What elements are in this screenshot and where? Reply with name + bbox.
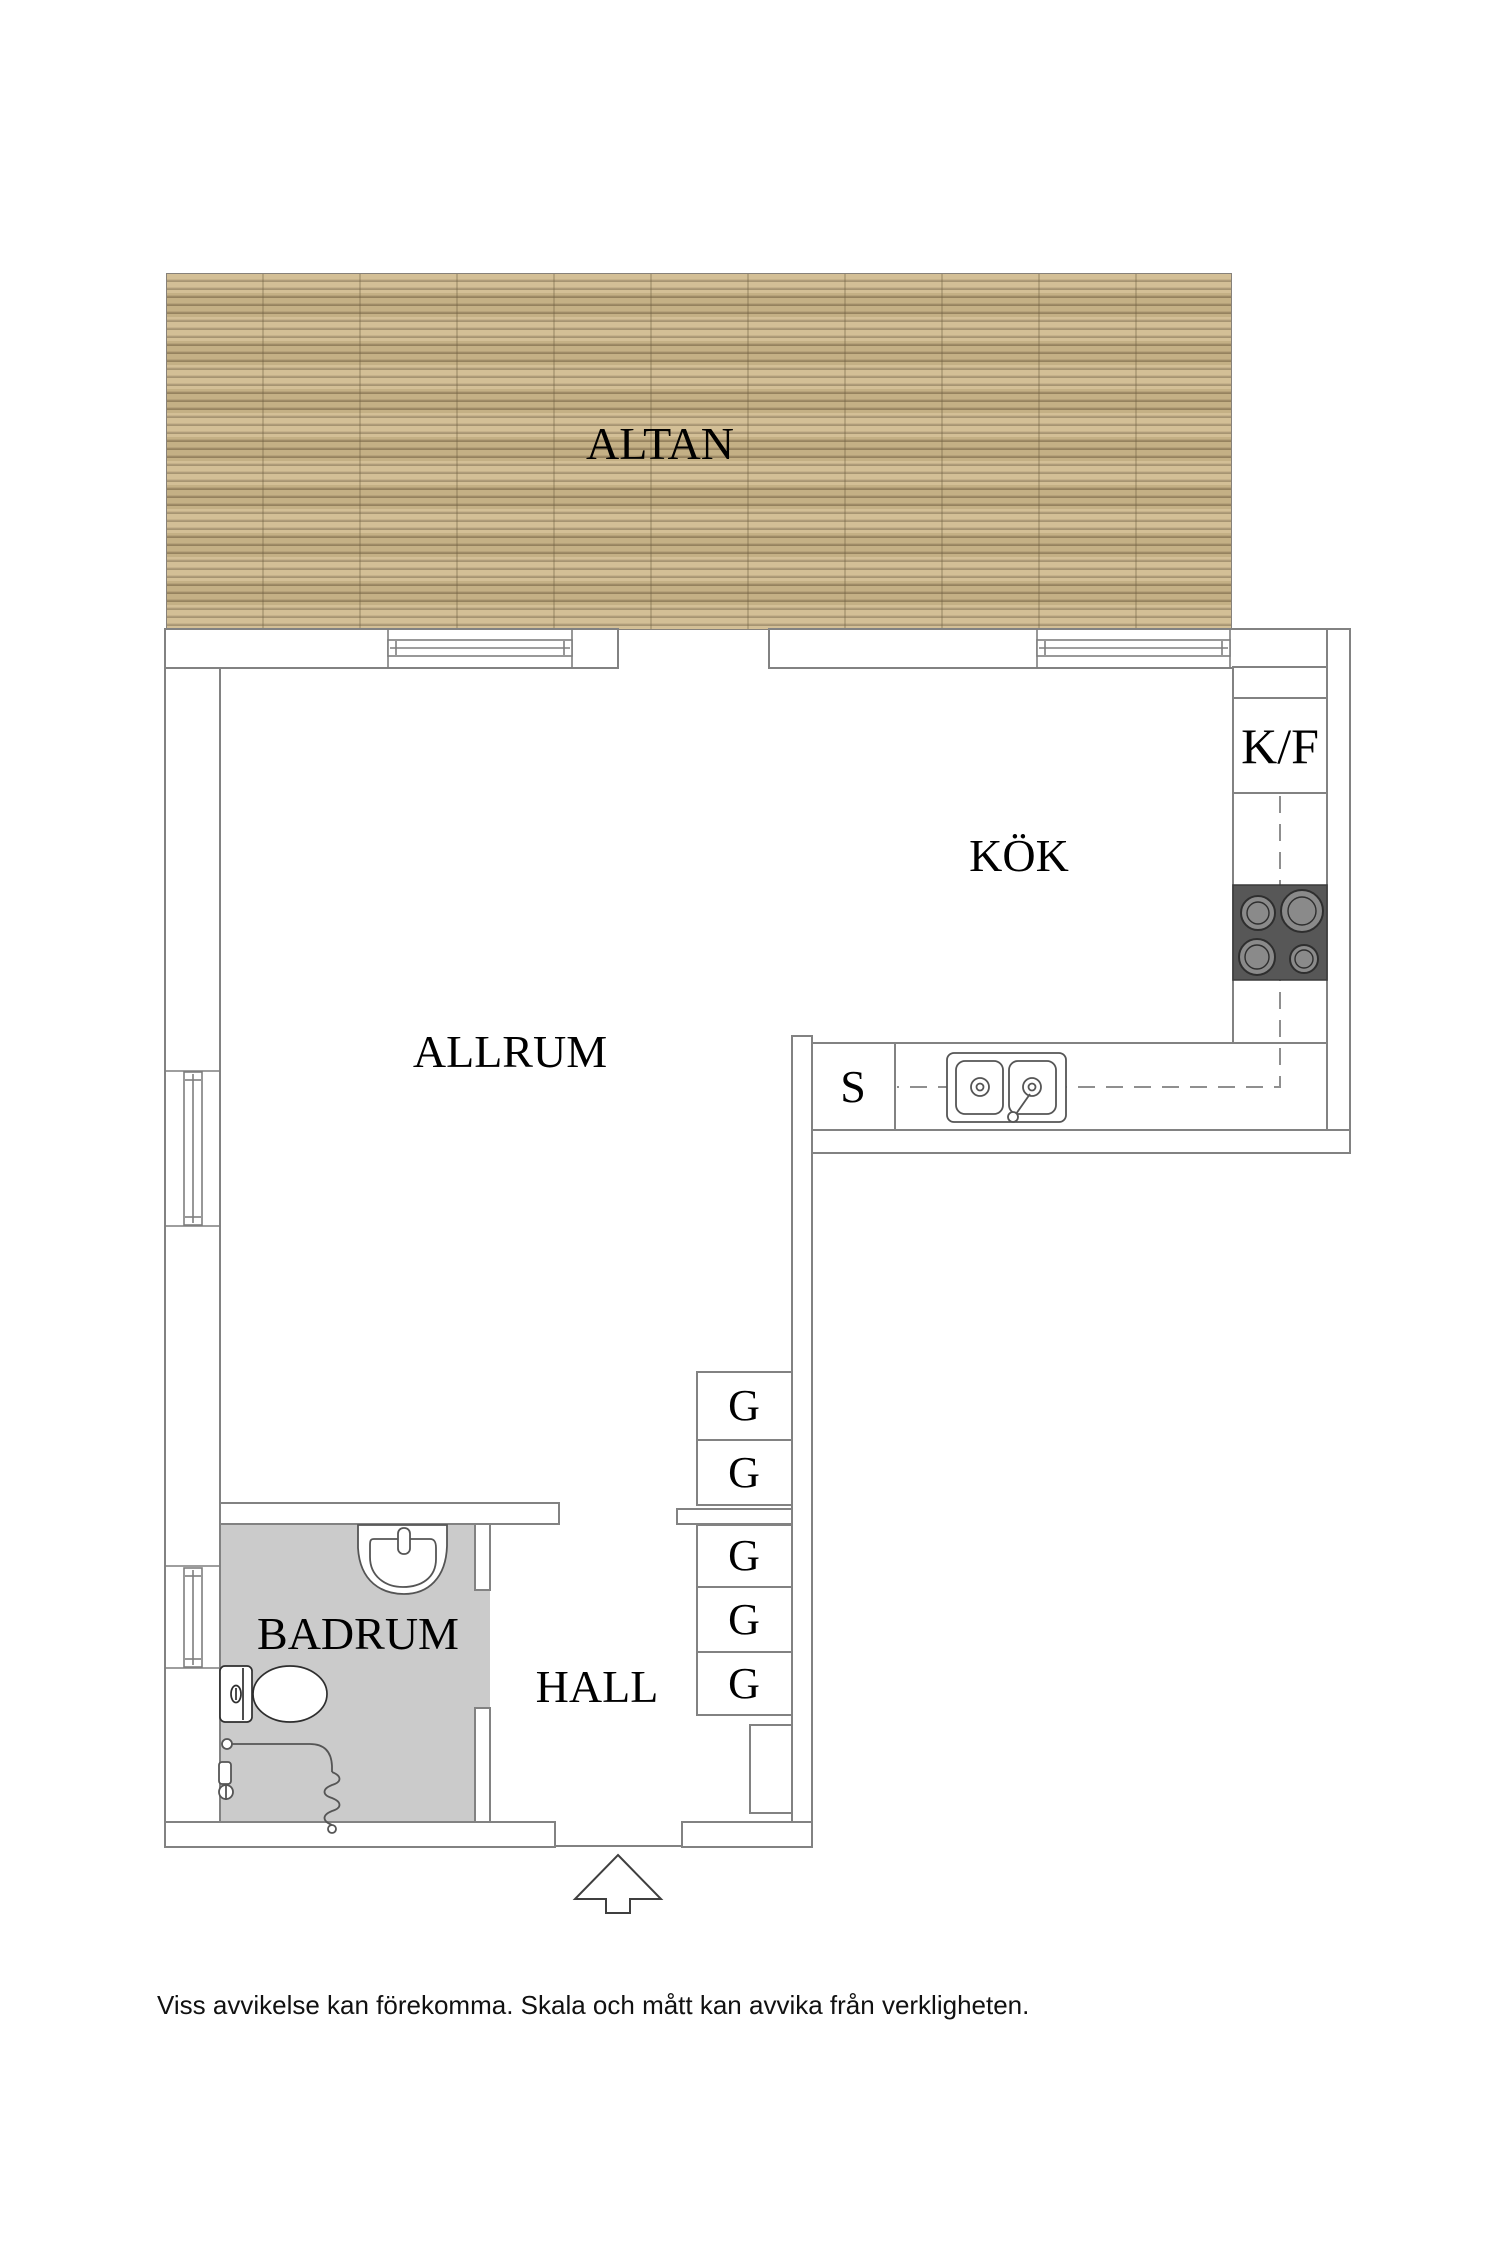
kitchen-south-wall [812, 1130, 1350, 1153]
room-label-allrum: ALLRUM [413, 1029, 607, 1075]
wardrobe-label: G [728, 1534, 760, 1578]
wardrobes [697, 1372, 792, 1813]
double-bowl-kitchen-sink-icon [947, 1053, 1066, 1122]
entrance-arrow-icon [575, 1855, 661, 1913]
bathroom-floor [220, 1524, 490, 1822]
floorplan-page: ALTAN KÖK ALLRUM BADRUM HALL K/F S G G G… [0, 0, 1500, 2250]
room-label-badrum: BADRUM [257, 1611, 459, 1657]
four-burner-stove-icon [1233, 885, 1327, 980]
bathroom-north-wall [220, 1503, 559, 1524]
wardrobe-label: G [728, 1384, 760, 1428]
bathroom-east-wall-upper [475, 1524, 490, 1590]
counter-s-label: S [840, 1064, 866, 1110]
fridge-freezer-label: K/F [1241, 721, 1319, 771]
mid-wall [792, 1036, 812, 1822]
room-label-altan: ALTAN [586, 421, 734, 467]
utility-shaft [750, 1725, 792, 1813]
east-wall [1327, 629, 1350, 1153]
room-label-kok: KÖK [969, 833, 1069, 879]
bathroom-east-wall-lower [475, 1708, 490, 1822]
bathroom-north-wall-stub [677, 1509, 792, 1524]
wardrobe-label: G [728, 1662, 760, 1706]
room-label-hall: HALL [536, 1664, 659, 1710]
floorplan-drawing [0, 0, 1500, 2250]
wardrobe-label: G [728, 1598, 760, 1642]
south-wall-right [682, 1822, 812, 1847]
disclaimer-text: Viss avvikelse kan förekomma. Skala och … [157, 1990, 1029, 2021]
south-wall-left [165, 1822, 555, 1847]
upper-cabinet [1233, 667, 1327, 698]
toilet-icon [220, 1666, 327, 1722]
wardrobe-label: G [728, 1451, 760, 1495]
